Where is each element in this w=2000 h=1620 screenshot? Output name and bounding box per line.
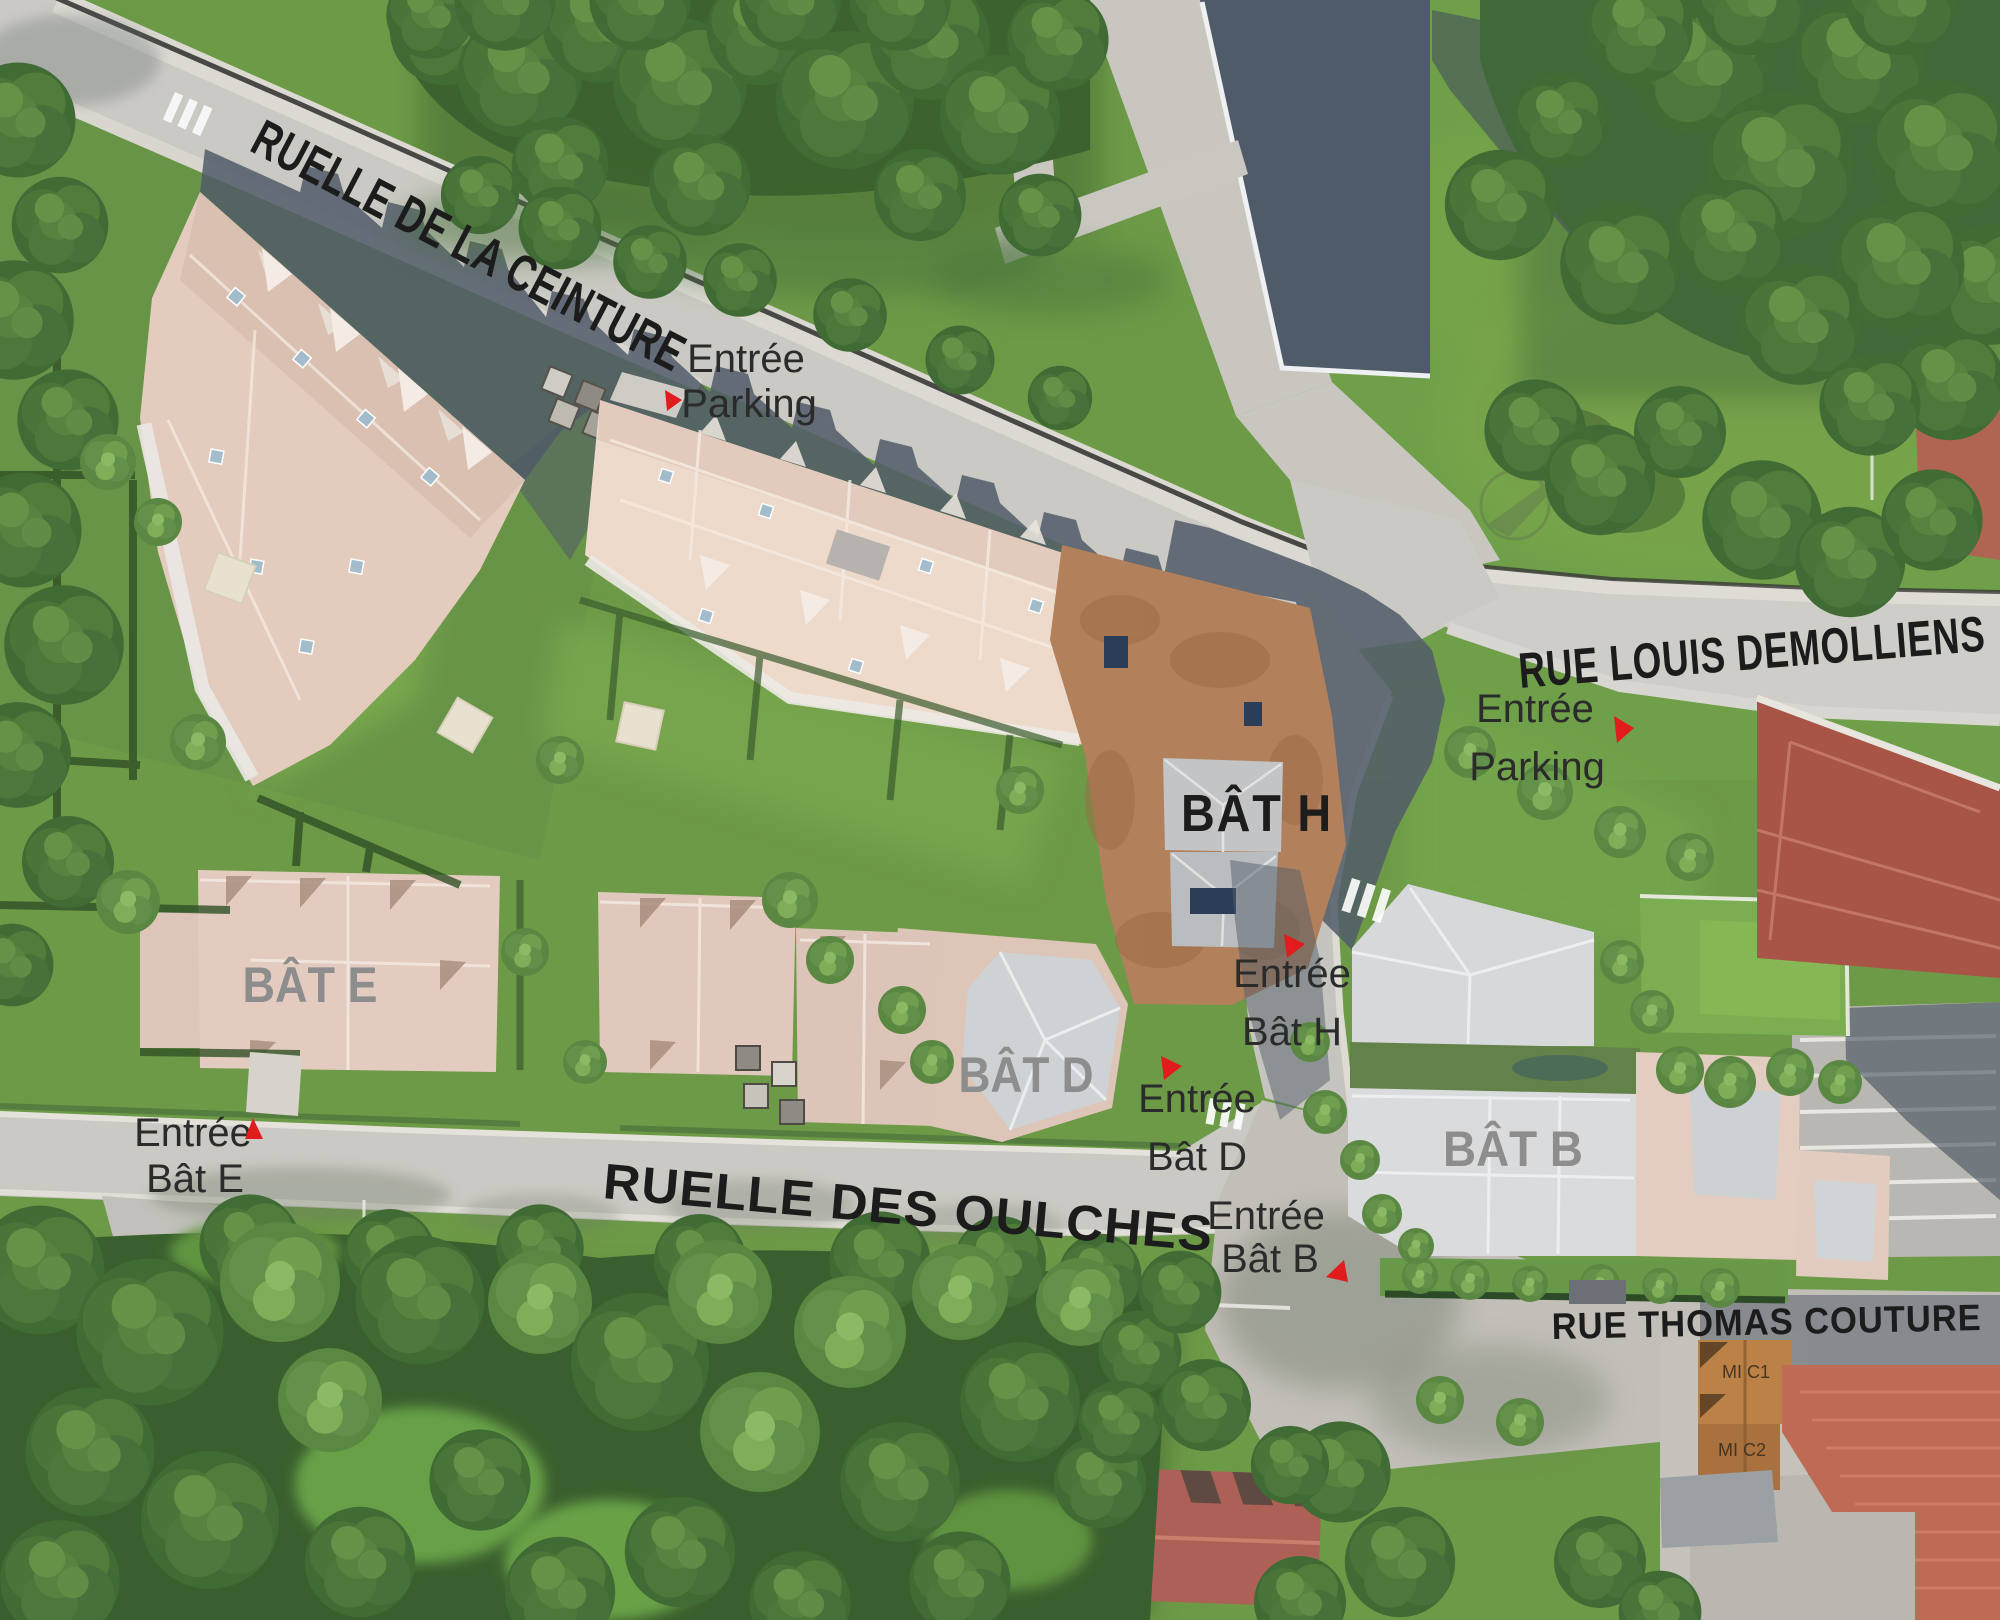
svg-text:Entrée: Entrée [687, 337, 805, 381]
svg-text:MI C2: MI C2 [1718, 1440, 1766, 1460]
svg-text:Parking: Parking [681, 382, 817, 426]
svg-text:Entrée: Entrée [134, 1111, 252, 1155]
svg-text:BÂT H: BÂT H [1181, 784, 1333, 843]
svg-text:Bât D: Bât D [1147, 1135, 1247, 1179]
svg-text:Entrée: Entrée [1476, 687, 1594, 731]
svg-text:BÂT E: BÂT E [243, 957, 378, 1013]
svg-text:Entrée: Entrée [1207, 1194, 1325, 1238]
svg-text:Parking: Parking [1469, 745, 1605, 789]
svg-text:Bât E: Bât E [146, 1157, 244, 1201]
svg-text:BÂT B: BÂT B [1443, 1121, 1583, 1177]
svg-text:Bât H: Bât H [1242, 1010, 1342, 1054]
svg-text:MI C1: MI C1 [1722, 1362, 1770, 1382]
svg-text:Entrée: Entrée [1138, 1077, 1256, 1121]
svg-text:Entrée: Entrée [1233, 952, 1351, 996]
svg-text:Bât B: Bât B [1221, 1237, 1319, 1281]
svg-text:BÂT D: BÂT D [959, 1047, 1094, 1103]
